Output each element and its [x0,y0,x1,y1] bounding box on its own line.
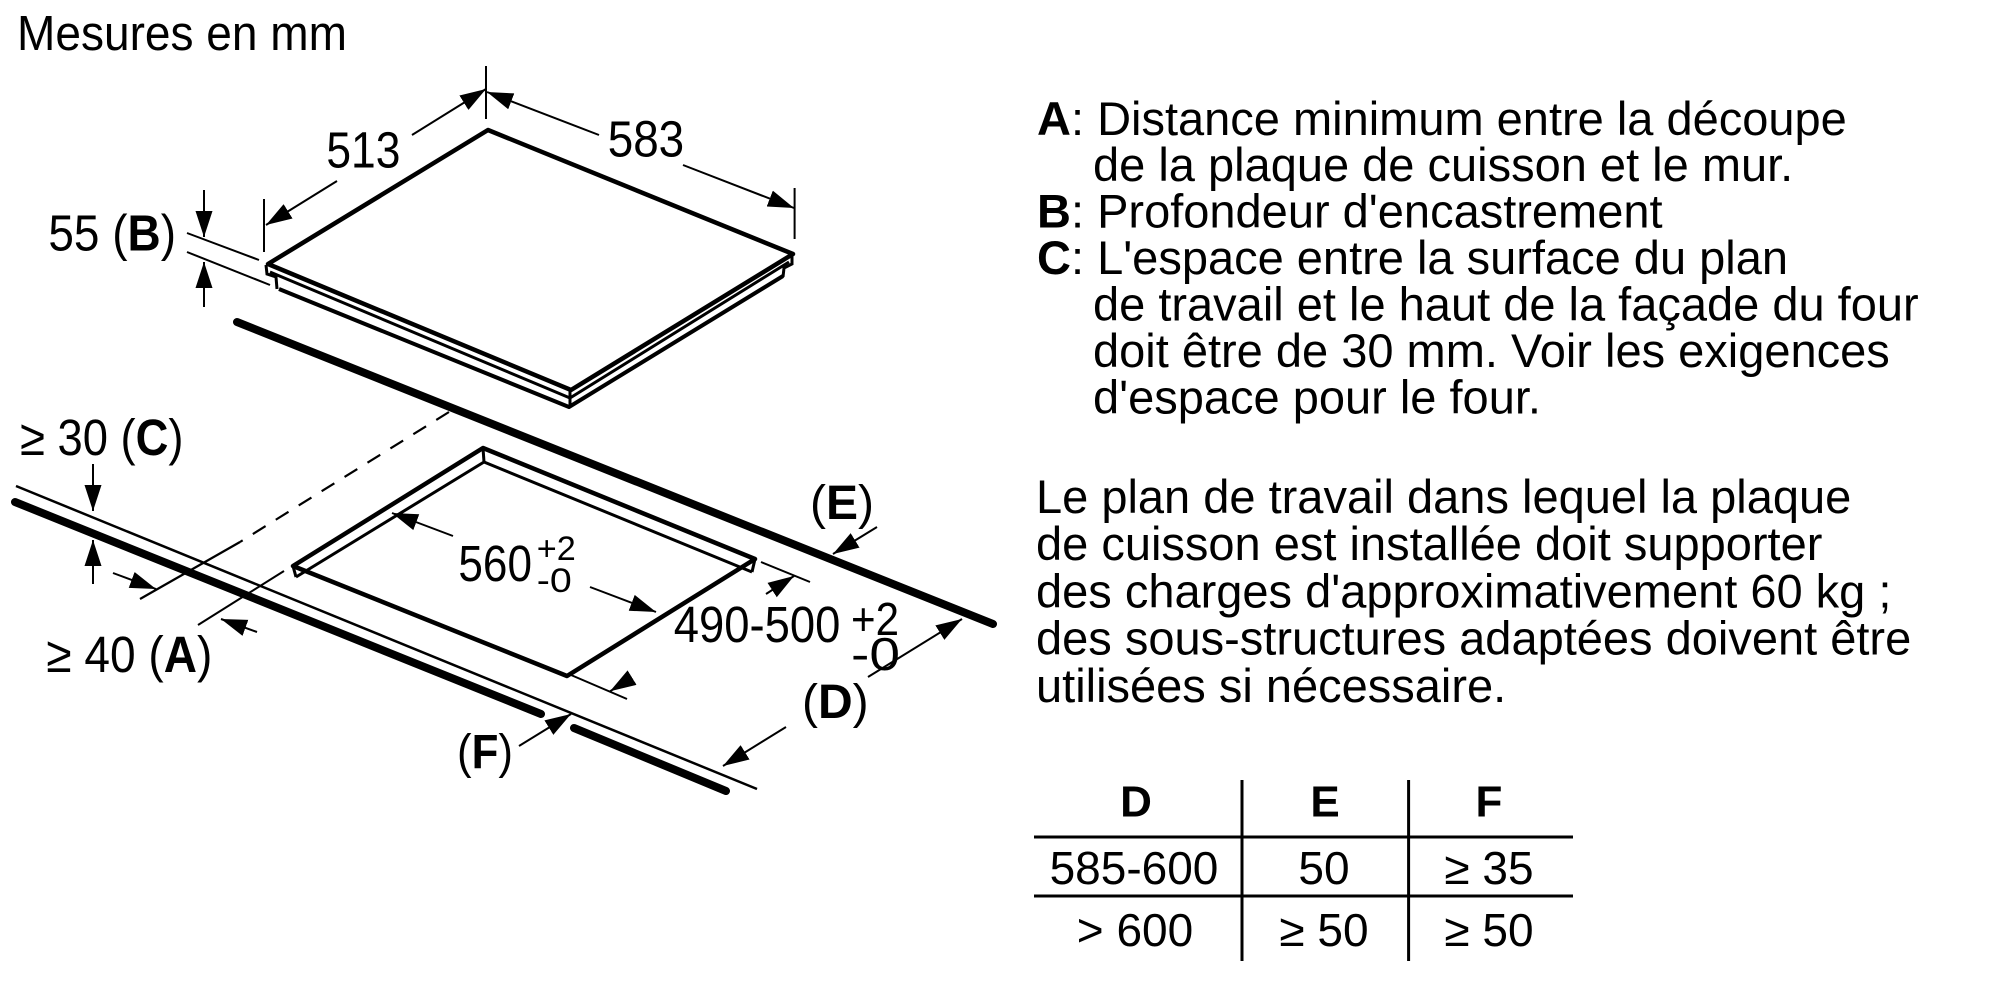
svg-text:> 600: > 600 [1077,904,1193,956]
svg-text:560: 560 [458,535,532,592]
svg-text:(D): (D) [802,676,869,729]
svg-text:Mesures en mm: Mesures en mm [17,7,347,61]
svg-text:d'espace pour le four.: d'espace pour le four. [1093,371,1541,424]
svg-text:≥ 40 (A): ≥ 40 (A) [46,626,212,683]
svg-text:≥ 50: ≥ 50 [1279,904,1368,956]
svg-text:F: F [1476,778,1503,827]
svg-text:Le plan de travail dans lequel: Le plan de travail dans lequel la plaque [1036,470,1851,523]
svg-text:des sous-structures adaptées d: des sous-structures adaptées doivent êtr… [1036,612,1911,665]
svg-text:C: L'espace entre la surface d: C: L'espace entre la surface du plan [1037,231,1788,284]
svg-text:55 (B): 55 (B) [48,205,176,262]
svg-text:585-600: 585-600 [1050,842,1219,894]
svg-text:B: Profondeur d'encastrement: B: Profondeur d'encastrement [1037,185,1663,238]
svg-text:(E): (E) [810,477,874,530]
svg-text:de cuisson est installée doit: de cuisson est installée doit supporter [1036,517,1822,570]
svg-text:de la plaque de cuisson et le: de la plaque de cuisson et le mur. [1093,138,1793,191]
svg-text:doit être de 30 mm. Voir les e: doit être de 30 mm. Voir les exigences [1093,324,1890,377]
svg-text:(F): (F) [457,726,513,779]
svg-text:≥ 30 (C): ≥ 30 (C) [20,409,184,466]
svg-text:490-500: 490-500 [674,596,841,653]
svg-text:≥ 35: ≥ 35 [1444,842,1533,894]
svg-text:513: 513 [326,122,400,179]
svg-text:de travail et le haut de la fa: de travail et le haut de la façade du fo… [1093,278,1919,331]
svg-text:50: 50 [1298,842,1349,894]
svg-text:des charges d'approximativemen: des charges d'approximativement 60 kg ; [1036,565,1891,618]
svg-text:≥ 50: ≥ 50 [1444,904,1533,956]
svg-text:utilisées si nécessaire.: utilisées si nécessaire. [1036,659,1506,712]
svg-text:-0: -0 [537,562,572,600]
svg-text:E: E [1310,778,1339,827]
svg-text:D: D [1120,778,1152,827]
svg-text:583: 583 [608,111,685,168]
